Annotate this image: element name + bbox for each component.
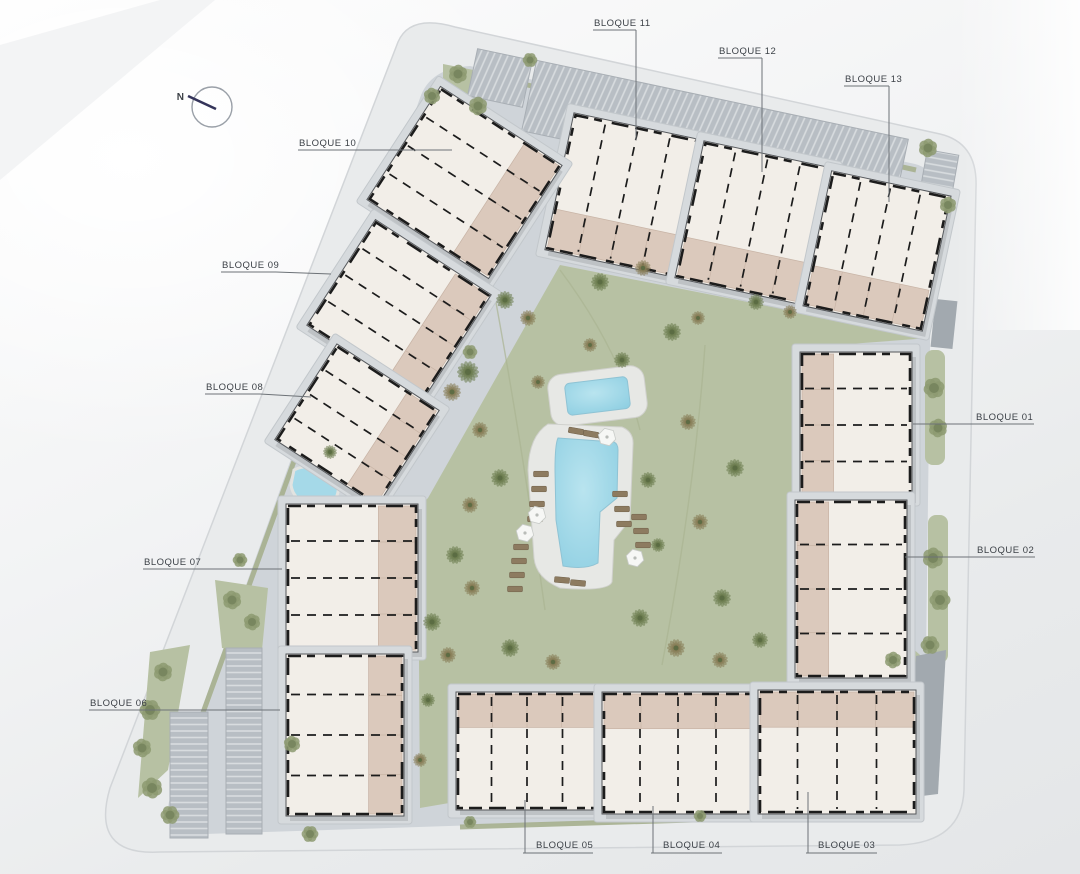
tree (694, 810, 707, 822)
sun-lounger (534, 471, 549, 477)
tree (921, 636, 940, 654)
green-area (215, 580, 268, 650)
label-text: BLOQUE 09 (222, 260, 279, 271)
sun-lounger (510, 572, 525, 578)
label-text: BLOQUE 03 (818, 840, 875, 851)
tree (464, 816, 477, 828)
sun-lounger (512, 558, 527, 564)
sun-lounger (615, 506, 630, 512)
sun-lounger (570, 580, 585, 587)
building-bloque-07[interactable] (278, 496, 426, 660)
label-text: BLOQUE 10 (299, 138, 356, 149)
label-text: BLOQUE 12 (719, 46, 776, 57)
green-area (925, 350, 945, 465)
tree (523, 53, 538, 67)
fade-overlay (955, 0, 1080, 330)
label-text: BLOQUE 07 (144, 557, 201, 568)
sun-lounger (636, 542, 651, 548)
label-text: BLOQUE 06 (90, 698, 147, 709)
site-plan-canvas: BLOQUE 11BLOQUE 12BLOQUE 13BLOQUE 10BLOQ… (0, 0, 1080, 874)
compass: N (177, 87, 232, 127)
building-bloque-05[interactable] (448, 684, 606, 818)
north-label: N (177, 92, 184, 103)
tree (161, 806, 180, 824)
sun-lounger (514, 544, 529, 550)
sun-lounger (617, 521, 632, 527)
tree (302, 826, 319, 842)
tree (463, 345, 478, 359)
site-plan: BLOQUE 11BLOQUE 12BLOQUE 13BLOQUE 10BLOQ… (0, 0, 1080, 874)
sun-lounger (508, 586, 523, 592)
tree (930, 590, 951, 610)
sun-lounger (632, 514, 647, 520)
tree (233, 553, 248, 567)
building-bloque-01[interactable] (792, 344, 920, 506)
label-text: BLOQUE 11 (594, 18, 651, 29)
building-bloque-06[interactable] (278, 646, 412, 824)
sun-lounger (532, 486, 547, 492)
label-text: BLOQUE 02 (977, 545, 1034, 556)
offsite-road-fragment (0, 0, 215, 180)
label-text: BLOQUE 01 (976, 412, 1033, 423)
label-text: BLOQUE 05 (536, 840, 593, 851)
sun-lounger (634, 528, 649, 534)
sun-lounger (530, 501, 545, 507)
building-bloque-03[interactable] (750, 682, 924, 822)
parking-area (226, 648, 262, 834)
label-text: BLOQUE 04 (663, 840, 720, 851)
sun-lounger (554, 577, 569, 584)
building-bloque-04[interactable] (594, 684, 762, 822)
label-text: BLOQUE 13 (845, 74, 902, 85)
label-text: BLOQUE 08 (206, 382, 263, 393)
sun-lounger (613, 491, 628, 497)
